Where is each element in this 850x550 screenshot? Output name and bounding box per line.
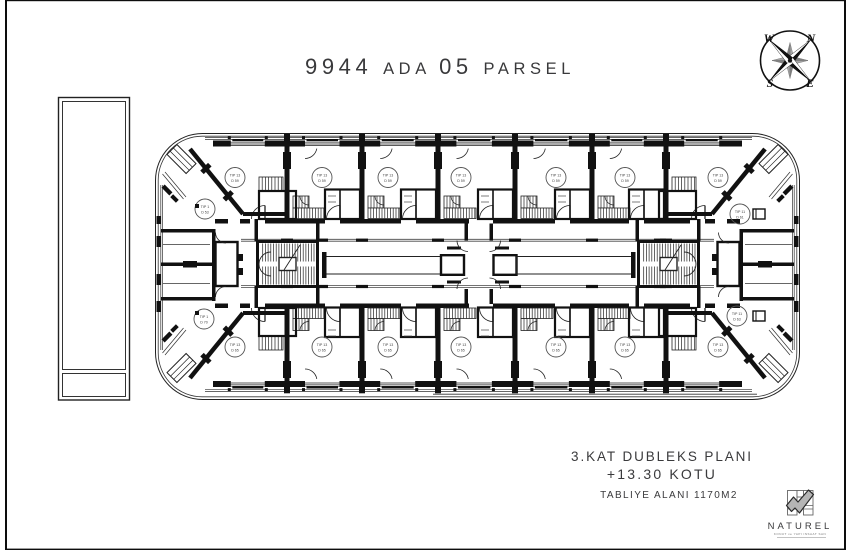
svg-text:D 59: D 59: [231, 179, 239, 183]
svg-text:D 70: D 70: [200, 320, 208, 324]
svg-text:D 63: D 63: [733, 317, 741, 321]
svg-text:TIP 13: TIP 13: [456, 173, 467, 177]
svg-text:TIP 13: TIP 13: [620, 343, 631, 347]
svg-text:D 65: D 65: [621, 348, 629, 352]
svg-text:TIP 13: TIP 13: [317, 343, 328, 347]
svg-text:TIP 13: TIP 13: [383, 173, 394, 177]
svg-text:S: S: [767, 76, 774, 90]
svg-text:D 59: D 59: [457, 179, 465, 183]
svg-text:D 65: D 65: [714, 348, 722, 352]
svg-text:W: W: [764, 31, 776, 45]
svg-text:TIP 11: TIP 11: [735, 210, 745, 214]
svg-text:TIP 13: TIP 13: [713, 173, 724, 177]
svg-text:NATUREL: NATUREL: [768, 521, 833, 532]
svg-text:E: E: [805, 76, 814, 90]
svg-text:KONUT ve YAPI INSAAT SAN: KONUT ve YAPI INSAAT SAN: [774, 532, 826, 536]
svg-text:D 65: D 65: [384, 348, 392, 352]
svg-text:TIP 13: TIP 13: [551, 173, 562, 177]
svg-text:D 59: D 59: [552, 179, 560, 183]
svg-text:TIP 13: TIP 13: [317, 173, 328, 177]
svg-text:TIP 13: TIP 13: [230, 343, 241, 347]
svg-text:D 59: D 59: [318, 179, 326, 183]
svg-text:D 65: D 65: [457, 348, 465, 352]
svg-text:D 65: D 65: [552, 348, 560, 352]
svg-text:TIP 1: TIP 1: [200, 315, 209, 319]
svg-text:D 65: D 65: [318, 348, 326, 352]
svg-text:D 59: D 59: [714, 179, 722, 183]
svg-text:TIP 13: TIP 13: [456, 343, 467, 347]
svg-text:TABLIYE ALANI 1170M2: TABLIYE ALANI 1170M2: [600, 490, 738, 501]
svg-text:D 59: D 59: [621, 179, 629, 183]
svg-text:3.KAT DUBLEKS PLANI: 3.KAT DUBLEKS PLANI: [571, 449, 753, 464]
svg-text:TIP 11: TIP 11: [732, 312, 742, 316]
svg-text:TIP 13: TIP 13: [383, 343, 394, 347]
svg-text:TIP 13: TIP 13: [620, 173, 631, 177]
svg-text:D 59: D 59: [384, 179, 392, 183]
svg-text:D 53: D 53: [201, 210, 209, 214]
svg-text:D 65: D 65: [231, 348, 239, 352]
svg-text:N: N: [806, 31, 817, 45]
svg-text:D 61: D 61: [736, 215, 744, 219]
svg-text:TIP 13: TIP 13: [230, 173, 241, 177]
svg-text:TIP 13: TIP 13: [551, 343, 562, 347]
svg-text:TIP 1: TIP 1: [201, 205, 210, 209]
svg-text:+13.30 KOTU: +13.30 KOTU: [607, 466, 717, 482]
svg-text:TIP 13: TIP 13: [713, 343, 724, 347]
